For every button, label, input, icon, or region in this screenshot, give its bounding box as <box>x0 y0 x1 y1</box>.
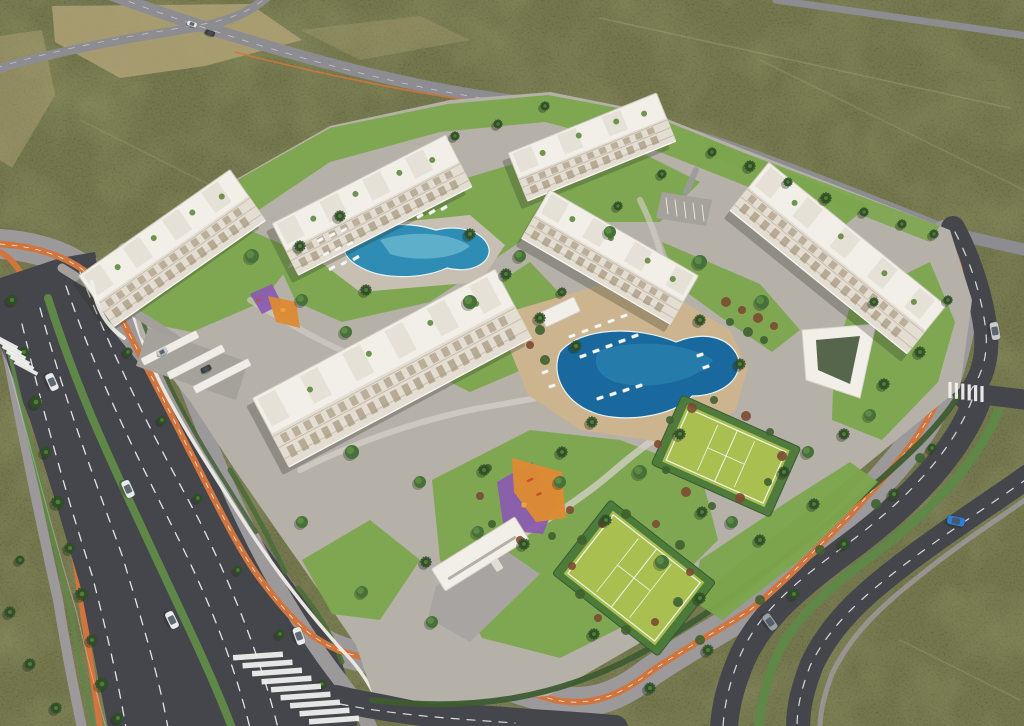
planting-bed <box>621 625 631 635</box>
crosswalk-stripe <box>948 382 951 398</box>
crosswalk-stripe <box>980 386 983 402</box>
planting-bed <box>594 614 602 622</box>
planting-bed <box>766 428 774 436</box>
planting-bed <box>476 492 484 500</box>
road-east-stub <box>962 392 1024 400</box>
planting-bed <box>681 487 691 497</box>
planting-bed <box>770 322 778 330</box>
planting-bed <box>687 403 697 413</box>
planting-bed <box>726 318 734 326</box>
planting-bed <box>621 509 631 519</box>
planting-bed <box>540 355 550 365</box>
planting-bed <box>721 297 731 307</box>
planting-bed <box>710 396 718 404</box>
crosswalk-stripe <box>961 384 964 400</box>
planting-bed <box>871 499 881 509</box>
planting-bed <box>708 502 716 510</box>
planting-bed <box>695 635 705 645</box>
crosswalk-stripe <box>968 384 971 400</box>
planting-bed <box>673 597 683 607</box>
planting-bed <box>753 313 763 323</box>
planting-bed <box>651 618 659 626</box>
crosswalk-stripe <box>955 383 958 399</box>
planting-bed <box>686 568 694 576</box>
aerial-render-canvas: Aerial 3D rendering of a gated residenti… <box>0 0 1024 726</box>
planting-bed <box>743 327 753 337</box>
planting-bed <box>526 341 534 349</box>
scene-layers <box>0 0 1024 726</box>
planting-bed <box>815 545 825 555</box>
planting-bed <box>735 493 745 503</box>
planting-bed <box>764 478 772 486</box>
planting-bed <box>652 520 660 528</box>
planting-bed <box>741 411 751 421</box>
planting-bed <box>488 520 496 528</box>
planting-bed <box>777 451 787 461</box>
crosswalk-stripe <box>974 385 977 401</box>
planting-bed <box>548 532 556 540</box>
planting-bed <box>568 562 576 570</box>
planting-bed <box>675 540 685 550</box>
play-equipment-3 <box>522 503 527 508</box>
planting-bed <box>535 325 545 335</box>
planting-bed <box>915 453 925 463</box>
planting-bed <box>575 589 585 599</box>
planting-bed <box>662 466 670 474</box>
planting-bed <box>654 440 662 448</box>
aerial-site-render: Aerial 3D rendering of a gated residenti… <box>0 0 1024 726</box>
planting-bed <box>755 595 765 605</box>
planting-bed <box>738 306 746 314</box>
planting-bed <box>666 416 674 424</box>
planting-bed <box>577 535 587 545</box>
planting-bed <box>566 506 574 514</box>
planting-bed <box>760 336 768 344</box>
play-equipment-5 <box>281 308 286 312</box>
